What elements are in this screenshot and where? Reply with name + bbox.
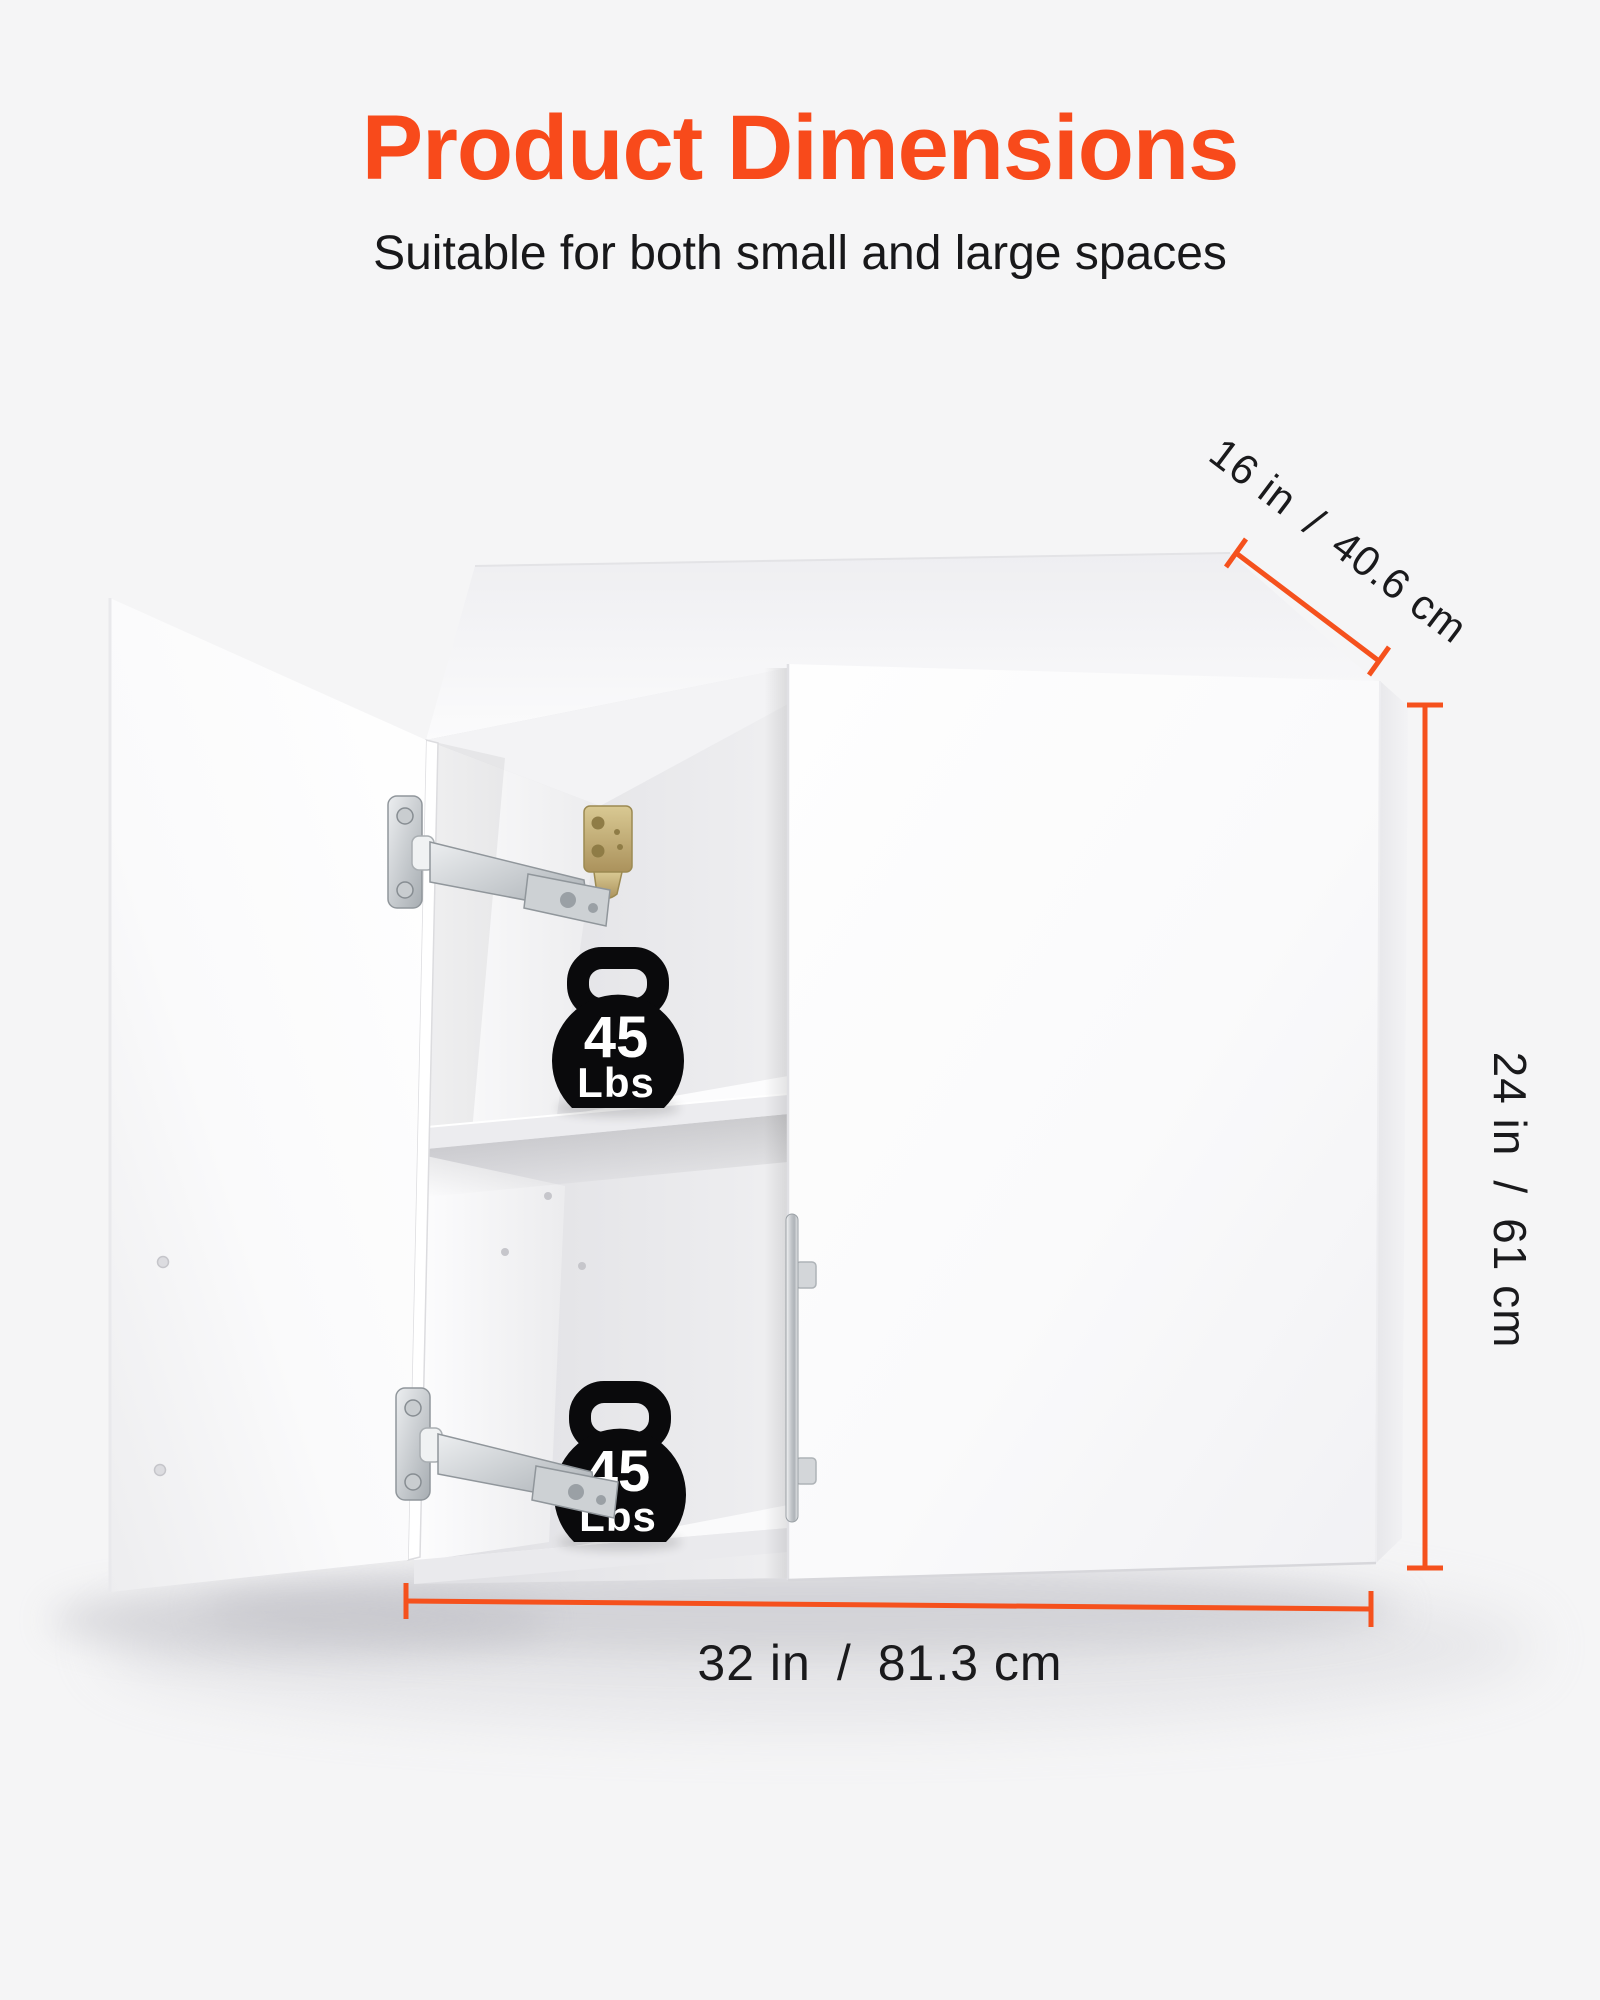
open-left-door: [110, 598, 438, 1592]
handle-bar: [786, 1214, 798, 1522]
handle-standoff: [796, 1262, 816, 1288]
product-dimensions-infographic: 45 Lbs 45 Lbs: [0, 0, 1600, 2000]
cabinet-illustration: 45 Lbs 45 Lbs: [0, 0, 1600, 2000]
height-dimension-label: 24 in / 61 cm: [1484, 1052, 1536, 1349]
capacity-unit: Lbs: [577, 1059, 655, 1106]
width-dimension-label: 32 in / 81.3 cm: [697, 1635, 1062, 1691]
handle-standoff: [796, 1458, 816, 1484]
page-title: Product Dimensions: [0, 100, 1600, 196]
door-face: [110, 598, 426, 1592]
interior-right-shadow: [764, 668, 788, 1578]
closed-right-door: [786, 664, 1380, 1580]
door-face: [788, 664, 1380, 1580]
page-subtitle: Suitable for both small and large spaces: [0, 226, 1600, 282]
